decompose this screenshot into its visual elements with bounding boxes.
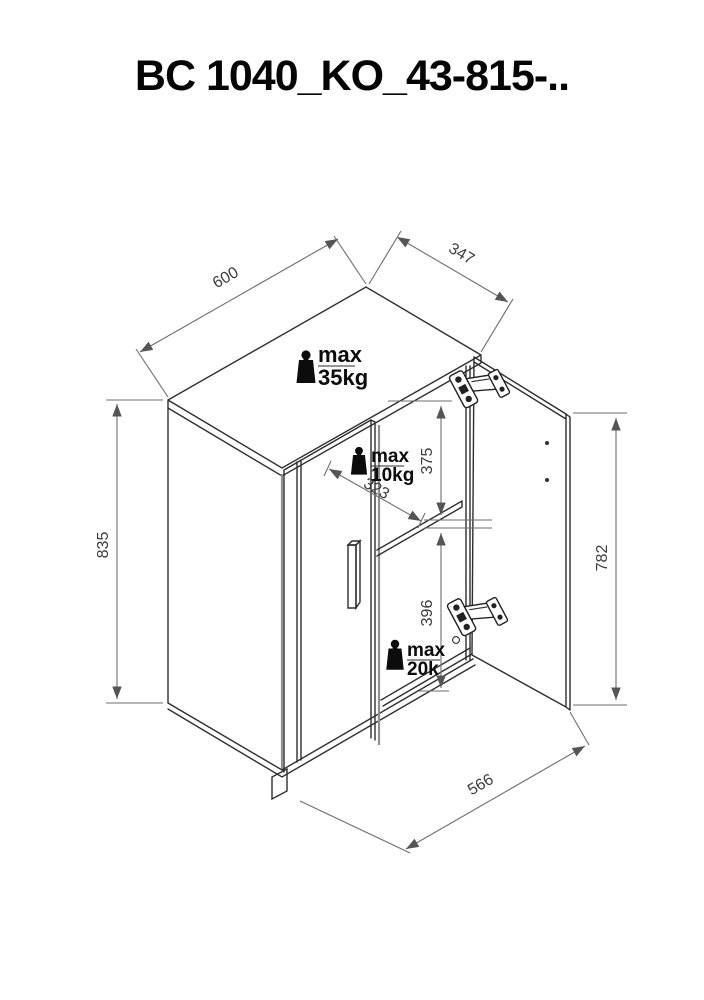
load-label-top: max 35kg bbox=[297, 342, 369, 390]
load-shelf-value: 10kg bbox=[371, 465, 414, 486]
dimension-top-depth: 347 bbox=[369, 231, 513, 352]
dimension-left-height: 835 bbox=[95, 400, 163, 703]
dim-label-347: 347 bbox=[445, 240, 477, 268]
technical-drawing-page: BC 1040_KO_43-815-.. bbox=[0, 0, 704, 1000]
open-door bbox=[446, 355, 570, 710]
hinge-screw-hole bbox=[453, 637, 460, 644]
door-handle bbox=[348, 541, 360, 608]
open-door-outline bbox=[472, 357, 570, 710]
front-foot bbox=[272, 769, 287, 799]
load-shelf-max: max bbox=[371, 446, 409, 467]
dim-label-375: 375 bbox=[419, 448, 436, 475]
load-top-max: max bbox=[318, 342, 363, 367]
weight-icon-bottom bbox=[386, 640, 403, 670]
dimension-door-height: 782 bbox=[573, 413, 627, 705]
door-pin-hole-2 bbox=[545, 478, 549, 482]
dimension-bottom-width: 566 bbox=[300, 712, 589, 853]
door-pin-hole-1 bbox=[545, 441, 549, 445]
load-label-shelf: max 10kg bbox=[351, 446, 414, 486]
load-label-bottom: max 20k bbox=[386, 640, 445, 680]
hinge-bottom-icon bbox=[446, 583, 508, 643]
load-bottom-value: 20k bbox=[407, 659, 439, 680]
dim-label-835: 835 bbox=[95, 532, 112, 559]
load-bottom-max: max bbox=[407, 640, 445, 661]
dim-label-782: 782 bbox=[594, 545, 611, 572]
weight-icon-shelf bbox=[351, 447, 367, 475]
weight-icon-top bbox=[297, 350, 316, 383]
dim-label-396: 396 bbox=[419, 600, 436, 627]
dim-label-566: 566 bbox=[465, 771, 497, 799]
cabinet-technical-drawing: 600 347 835 782 566 375 bbox=[0, 0, 704, 1000]
dim-label-600: 600 bbox=[210, 264, 242, 292]
load-top-value: 35kg bbox=[318, 365, 368, 390]
